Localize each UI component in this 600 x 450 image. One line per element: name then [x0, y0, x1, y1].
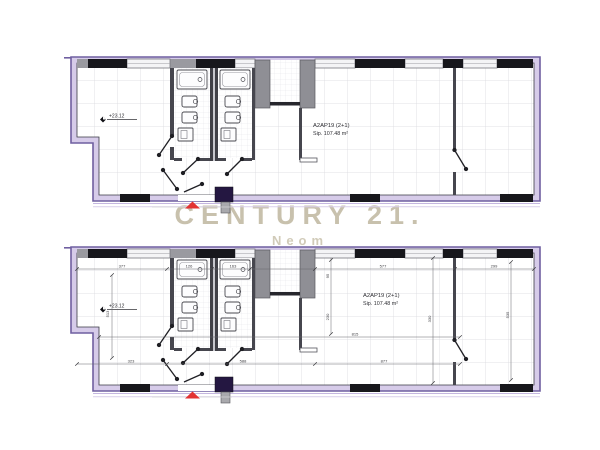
- dim-513: 513: [105, 310, 110, 317]
- floor-plan-top: +23.12 A2AP19 (2+1) Sip. 107.48 m²: [64, 57, 540, 213]
- dim-126: 126: [186, 264, 193, 269]
- dim-577: 577: [380, 264, 387, 269]
- dim-230: 230: [325, 313, 330, 320]
- elevation-label: +23.12: [109, 114, 125, 120]
- floor-plan-bottom: +23.12 A2AP19 (2+1) Sip. 107.48 m²: [64, 247, 540, 403]
- elevation-label: +23.12: [109, 304, 125, 310]
- floorplan-page: CENTURY 21. Neom: [0, 0, 600, 450]
- dim-330: 330: [427, 315, 432, 322]
- dim-95: 95: [325, 273, 330, 278]
- dim-877: 877: [381, 359, 388, 364]
- area-label: Sip. 107.48 m²: [363, 301, 398, 307]
- floor-plans-canvas: +23.12 A2AP19 (2+1) Sip. 107.48 m² +23.1…: [0, 0, 600, 450]
- area-label: Sip. 107.48 m²: [313, 131, 348, 137]
- unit-label: A2AP19 (2+1): [313, 123, 350, 129]
- dim-299: 299: [491, 264, 498, 269]
- dim-377: 377: [119, 264, 126, 269]
- dim-815: 815: [352, 332, 359, 337]
- dim-535: 535: [505, 311, 510, 318]
- dim-323: 323: [128, 359, 135, 364]
- dim-588: 588: [240, 359, 247, 364]
- dim-163: 163: [230, 264, 237, 269]
- unit-label: A2AP19 (2+1): [363, 293, 400, 299]
